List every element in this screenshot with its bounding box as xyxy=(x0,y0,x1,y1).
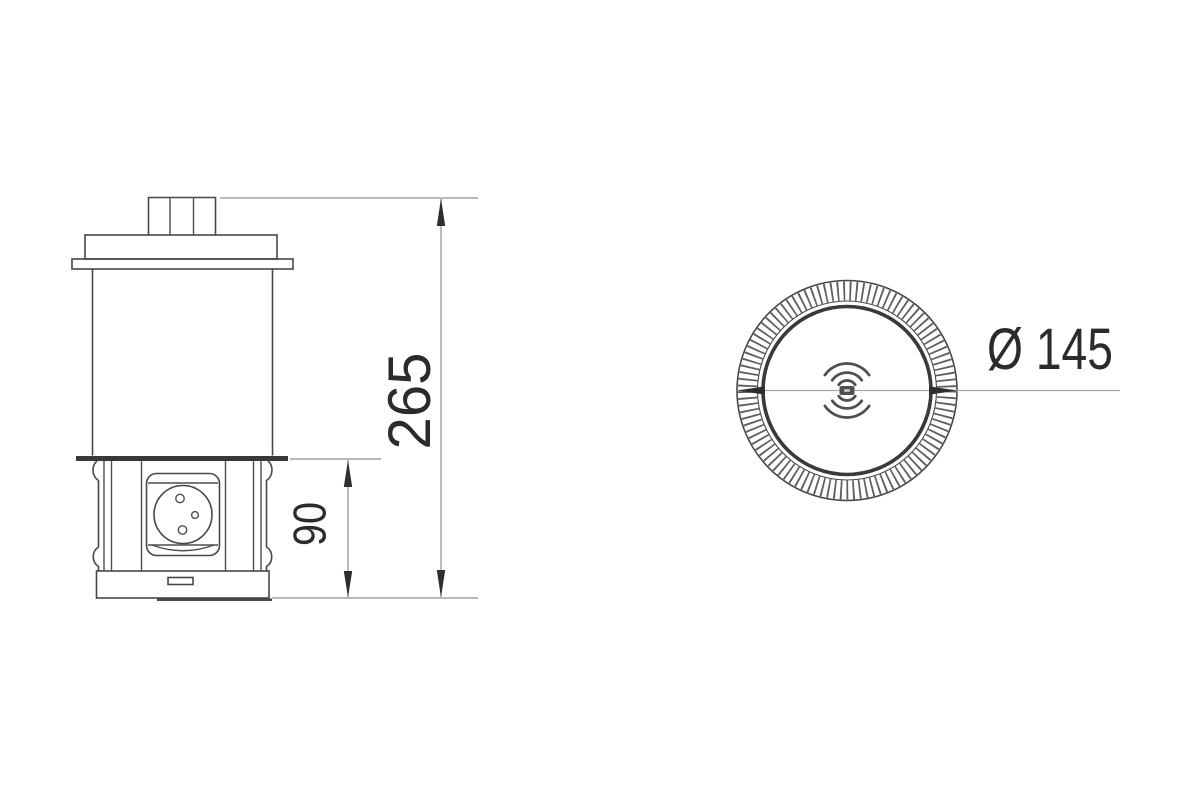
charging-coil-center-dot xyxy=(844,389,850,392)
cable-connector-posts xyxy=(149,198,216,236)
arrow-down-icon xyxy=(437,570,445,598)
top-view: Ø 145 xyxy=(737,281,1120,501)
raised-socket-section xyxy=(93,461,272,571)
dimension-label-overall-height: 265 xyxy=(376,353,443,450)
section-profile-left xyxy=(93,461,98,571)
drawing-page: 265 90 Ø 145 xyxy=(0,0,1200,800)
dimension-label-raised-height: 90 xyxy=(284,502,336,546)
arrow-down-icon xyxy=(344,571,352,598)
socket-bottom-arc xyxy=(152,545,214,551)
dimension-265: 265 xyxy=(220,198,478,598)
arrow-up-icon xyxy=(437,199,445,227)
technical-drawing-canvas: 265 90 Ø 145 xyxy=(0,0,1200,800)
section-profile-right xyxy=(267,461,272,571)
dimension-label-diameter: Ø 145 xyxy=(987,317,1113,382)
top-flange xyxy=(72,259,293,269)
dimension-90: 90 xyxy=(284,459,382,598)
arrow-up-icon xyxy=(344,460,352,487)
side-view xyxy=(72,198,293,600)
socket-pin-holes xyxy=(176,494,199,534)
base-slot xyxy=(168,578,193,585)
power-socket xyxy=(147,474,220,556)
base-housing xyxy=(97,571,273,600)
top-cap xyxy=(85,235,277,259)
arrow-left-icon xyxy=(737,386,765,394)
column-body xyxy=(93,269,273,456)
